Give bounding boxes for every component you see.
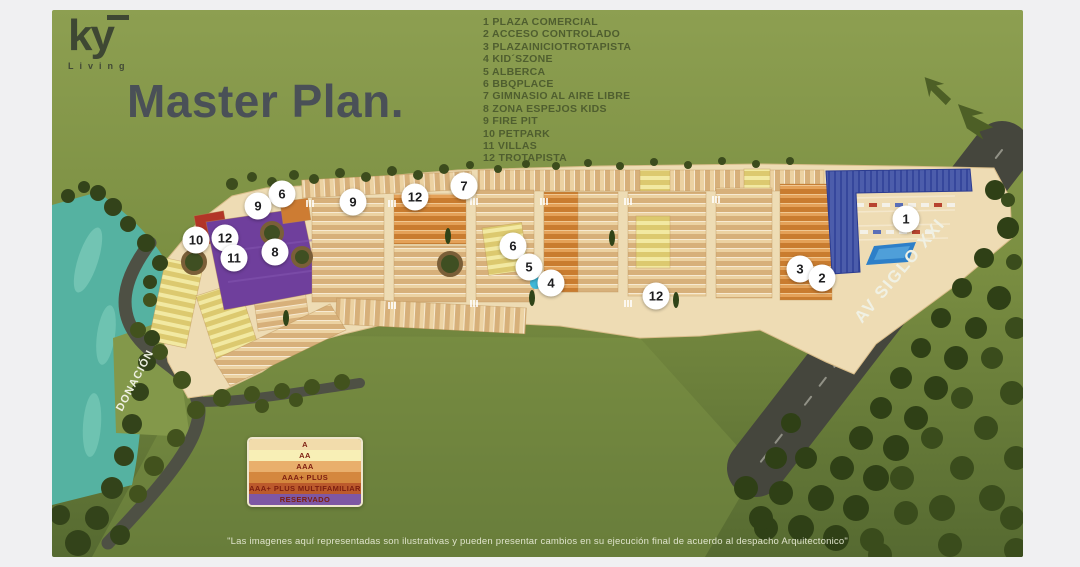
logo-wordmark: ky <box>68 14 126 58</box>
disclaimer-text: "Las imagenes aquí representadas son ilu… <box>52 536 1023 547</box>
page-title: Master Plan. <box>127 74 404 128</box>
category-band: AAA+ PLUS <box>249 472 361 483</box>
amenity-item-10: 10 PETPARK <box>483 128 631 140</box>
category-band: AAA <box>249 461 361 472</box>
amenity-item-8: 8 ZONA ESPEJOS KIDS <box>483 103 631 115</box>
logo-subtext: Living <box>68 61 131 71</box>
category-legend: AAAAAAAAA+ PLUSAAA+ PLUS MULTIFAMILIARRE… <box>247 437 363 507</box>
amenities-legend: 1 PLAZA COMERCIAL2 ACCESO CONTROLADO3 PL… <box>483 16 631 165</box>
amenity-item-12: 12 TROTAPISTA <box>483 152 631 164</box>
category-band: AA <box>249 450 361 461</box>
amenity-item-7: 7 GIMNASIO AL AIRE LIBRE <box>483 90 631 102</box>
category-band: A <box>249 439 361 450</box>
amenity-item-9: 9 FIRE PIT <box>483 115 631 127</box>
logo-bar-icon <box>107 15 129 20</box>
category-band: RESERVADO <box>249 494 361 505</box>
amenity-item-11: 11 VILLAS <box>483 140 631 152</box>
amenity-item-4: 4 KID´SZONE <box>483 53 631 65</box>
amenity-item-2: 2 ACCESO CONTROLADO <box>483 28 631 40</box>
master-plan-poster: AV SIGLO XXI DONACIÓN ky Living Master P… <box>0 0 1080 567</box>
amenity-item-5: 5 ALBERCA <box>483 66 631 78</box>
category-band: AAA+ PLUS MULTIFAMILIAR <box>249 483 361 494</box>
amenity-item-3: 3 PLAZAINICIOTROTAPISTA <box>483 41 631 53</box>
amenity-item-6: 6 BBQPLACE <box>483 78 631 90</box>
alberca-pool <box>530 277 542 289</box>
amenity-item-1: 1 PLAZA COMERCIAL <box>483 16 631 28</box>
brand-logo: ky Living <box>68 14 131 71</box>
